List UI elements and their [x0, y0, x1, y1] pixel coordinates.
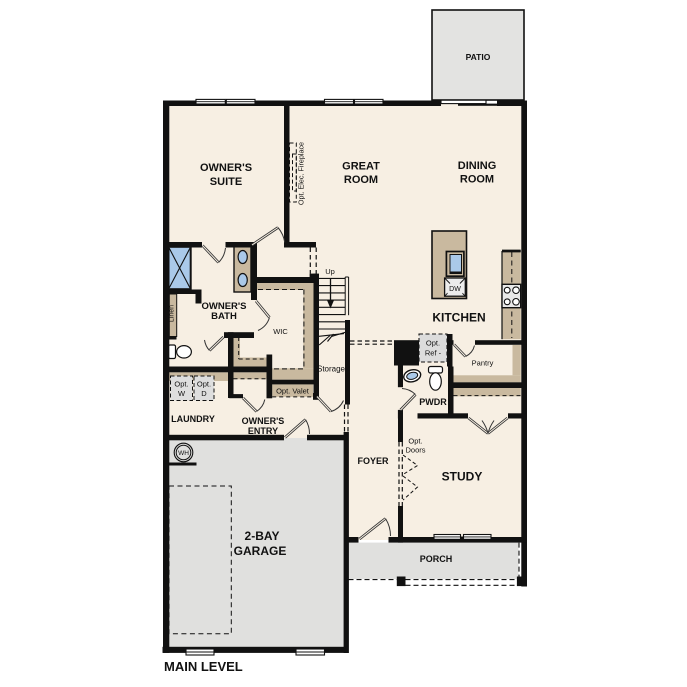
svg-text:WIC: WIC	[273, 327, 288, 336]
svg-text:W: W	[178, 389, 186, 398]
svg-text:Pantry: Pantry	[472, 359, 494, 368]
svg-text:KITCHEN: KITCHEN	[432, 311, 485, 325]
svg-text:ENTRY: ENTRY	[248, 426, 278, 436]
svg-text:BATH: BATH	[211, 311, 237, 322]
svg-text:STUDY: STUDY	[442, 470, 483, 484]
svg-text:FOYER: FOYER	[357, 456, 389, 466]
svg-text:Opt.: Opt.	[197, 380, 211, 389]
svg-text:GARAGE: GARAGE	[234, 544, 287, 558]
svg-text:GREAT: GREAT	[342, 161, 380, 173]
svg-text:Doors: Doors	[405, 446, 425, 455]
svg-text:ROOM: ROOM	[344, 174, 378, 186]
svg-text:WH: WH	[178, 450, 189, 457]
svg-text:Storage: Storage	[317, 365, 346, 374]
svg-text:PWDR: PWDR	[419, 397, 447, 407]
svg-text:MAIN LEVEL: MAIN LEVEL	[164, 659, 243, 674]
svg-text:DINING: DINING	[458, 160, 497, 172]
svg-text:Linen: Linen	[169, 305, 176, 322]
svg-text:Up: Up	[325, 267, 335, 276]
svg-text:Opt.: Opt.	[426, 339, 440, 348]
svg-text:DW: DW	[449, 286, 461, 293]
svg-text:LAUNDRY: LAUNDRY	[171, 414, 215, 424]
svg-text:Opt. Elec. Fireplace: Opt. Elec. Fireplace	[297, 142, 306, 205]
svg-text:Ref -: Ref -	[425, 349, 442, 358]
svg-text:OWNER'S: OWNER'S	[242, 416, 285, 426]
svg-text:Opt.: Opt.	[174, 380, 188, 389]
svg-text:2-BAY: 2-BAY	[245, 529, 280, 543]
svg-text:Opt.: Opt.	[408, 437, 422, 446]
svg-text:PORCH: PORCH	[420, 554, 453, 564]
svg-text:ROOM: ROOM	[460, 174, 494, 186]
svg-text:D: D	[201, 389, 207, 398]
svg-text:PATIO: PATIO	[466, 52, 491, 62]
svg-text:OWNER'S: OWNER'S	[200, 162, 252, 174]
svg-text:SUITE: SUITE	[210, 176, 242, 188]
svg-text:Opt. Valet: Opt. Valet	[276, 386, 310, 395]
